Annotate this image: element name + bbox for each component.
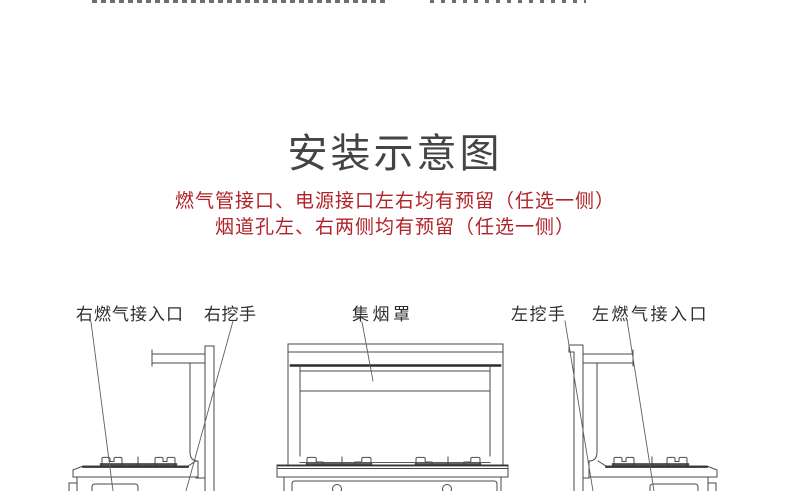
hood-duct-left-view xyxy=(583,350,633,477)
page: { "page": { "background": "#ffffff" }, "… xyxy=(0,0,790,491)
cabinet-hole-right xyxy=(443,485,452,491)
counter-band xyxy=(277,465,508,477)
front-view xyxy=(277,344,508,491)
cabinet-right-view xyxy=(69,477,205,491)
hood-top xyxy=(288,344,503,366)
cabinet-left-view xyxy=(583,477,716,491)
cabinet-hole-left xyxy=(333,485,342,491)
side-view-left xyxy=(569,345,717,491)
hood-duct-right-view xyxy=(152,350,205,477)
installation-diagram xyxy=(0,0,790,491)
cabinet-front-view xyxy=(284,477,501,491)
leader-left-grip-handle xyxy=(565,321,593,491)
hood-cavity xyxy=(300,371,490,391)
